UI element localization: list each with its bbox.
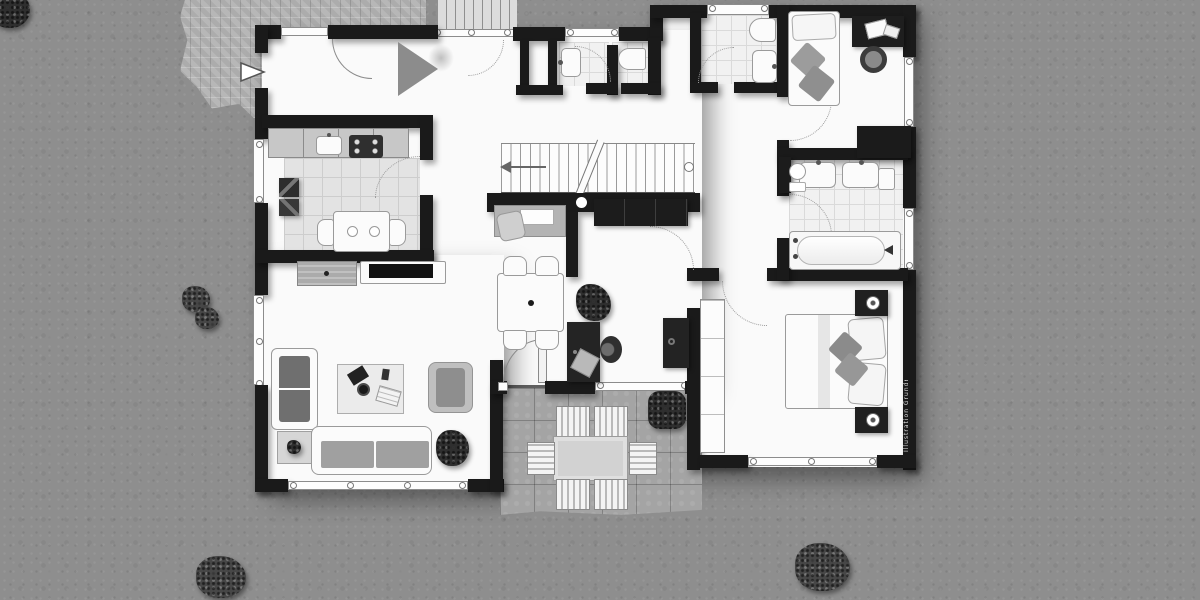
kitchen-window	[253, 139, 264, 203]
sofa-two-seat-cushions	[279, 356, 310, 422]
window-post	[256, 297, 263, 304]
coffee-table-bowl	[357, 383, 370, 396]
terrace-bush	[648, 391, 686, 429]
side-table-plant	[287, 440, 301, 454]
window-post	[906, 119, 913, 126]
wall-west-c	[255, 203, 268, 295]
entry-direction-arrow-icon	[238, 58, 268, 86]
wall-niche-west	[520, 40, 529, 88]
dining-chair	[503, 256, 527, 276]
kitchen-faucet	[327, 133, 331, 137]
wall-upperbath-south-a	[690, 82, 718, 93]
wall-living-terrace	[490, 360, 503, 492]
terrace-chair-south-1	[556, 479, 590, 510]
wall-west-a	[255, 25, 268, 53]
bush-west-2	[195, 307, 219, 329]
kitchen-chair-west	[317, 219, 334, 246]
dining-table-center	[528, 300, 534, 306]
dining-chair	[503, 330, 527, 350]
dining-chair	[535, 330, 559, 350]
terrace-chair-west	[527, 442, 555, 475]
wall-wc-south	[621, 83, 661, 94]
wall-south-dining-b	[545, 381, 595, 394]
hall-sideboard	[594, 199, 688, 226]
ensuite-window	[904, 208, 914, 270]
wall-upperbath-south-b	[734, 82, 779, 93]
upperbath-toilet	[749, 18, 776, 42]
window-post	[347, 482, 354, 489]
ensuite-faucet-1	[816, 160, 821, 165]
wall-master-south-b	[877, 455, 916, 468]
wc-toilet	[618, 48, 646, 70]
window-post	[597, 382, 604, 389]
window-post	[404, 482, 411, 489]
stove	[349, 135, 383, 158]
place-setting	[369, 226, 380, 237]
single-bed-pillow	[791, 13, 836, 41]
window-post	[611, 29, 618, 36]
window-post	[869, 458, 876, 465]
terrace-chair-south-2	[594, 479, 628, 510]
wall-kitchen-east-a	[420, 115, 433, 160]
kitchen-table	[333, 211, 390, 252]
dining-south-window	[595, 382, 685, 391]
upperbath-faucet	[772, 64, 777, 69]
wall-top-entrance-right	[328, 25, 438, 39]
wall-niche-east	[548, 40, 557, 88]
wall-east-a	[903, 5, 916, 57]
ensuite-faucet-2	[859, 160, 864, 165]
window-post	[761, 5, 768, 12]
sofa-seat-cushion	[321, 441, 374, 468]
ensuite-wardrobe	[857, 126, 911, 158]
ensuite-sink-2	[842, 162, 879, 188]
place-setting	[347, 226, 358, 237]
office-chair	[600, 336, 622, 363]
window-post	[750, 458, 757, 465]
sideboard-knob	[324, 271, 329, 276]
bedside-lamp	[866, 296, 880, 310]
kitchen-wall-art-1	[279, 178, 299, 197]
ensuite-toilet-bowl	[789, 163, 806, 180]
dining-chair	[535, 256, 559, 276]
window-post	[906, 58, 913, 65]
bush-southeast	[795, 543, 850, 591]
wall-niche-south	[516, 85, 563, 95]
kitchen-chair-east	[389, 219, 406, 246]
living-south-window	[288, 481, 468, 490]
hall-desk-paper	[520, 209, 554, 225]
railing-post	[504, 29, 511, 36]
terrace-chair-north-1	[556, 406, 590, 437]
railing-post	[468, 29, 475, 36]
bedside-lamp	[866, 413, 880, 427]
terrace-chair-north-2	[594, 406, 628, 437]
kitchen-sink	[316, 136, 342, 155]
stair-direction-line	[508, 166, 546, 168]
kitchen-wall-art-2	[279, 199, 299, 216]
window-post	[256, 141, 263, 148]
ensuite-toilet-mat	[789, 182, 806, 192]
desk-chair	[860, 46, 887, 73]
window-post	[459, 482, 466, 489]
hall-cabinet-knob	[668, 338, 675, 345]
living-plant	[436, 430, 469, 466]
wall-shower-south	[586, 83, 618, 94]
window-post	[290, 482, 297, 489]
exterior-stair	[437, 0, 517, 29]
bathtub-basin	[797, 236, 885, 265]
window-post	[808, 458, 815, 465]
small-bedroom-window	[904, 57, 914, 127]
stair-direction-arrow	[500, 161, 511, 173]
wall-west-b	[255, 88, 268, 139]
window-post	[567, 29, 574, 36]
terrace-chair-east	[629, 442, 657, 475]
sofa-seat-cushion	[376, 441, 429, 468]
wall-master-south-a	[700, 455, 748, 468]
window-post	[256, 338, 263, 345]
window-post	[256, 196, 263, 203]
stair-newel-circle	[684, 162, 694, 172]
shower-room-faucet	[558, 60, 563, 65]
entrance-top-window	[281, 27, 328, 36]
watermark: Illustration Grundriss	[903, 380, 915, 452]
tv	[369, 264, 433, 278]
stair-spine-post	[576, 197, 587, 208]
master-wardrobe	[700, 299, 725, 453]
bathtub-arrow	[884, 245, 893, 255]
window-post	[709, 5, 716, 12]
terrace-table	[553, 436, 628, 481]
floorplan-canvas: Illustration Grundriss	[0, 0, 1200, 600]
upper-bathroom-window	[707, 4, 769, 15]
dining-door-sidelight	[498, 382, 508, 391]
entrance-sketch-smudge	[428, 44, 454, 72]
shower-room-sink	[561, 48, 581, 77]
ensuite-shelf	[878, 168, 895, 190]
bathtub-tap	[793, 254, 798, 259]
wall-kitchen-north	[262, 115, 421, 128]
wall-west-d	[255, 385, 268, 492]
wall-top-mid-left	[513, 27, 565, 41]
wall-south-living-left	[255, 479, 288, 492]
window-post	[906, 210, 913, 217]
bathtub-tap	[793, 238, 798, 243]
wall-ensuite-west-b	[777, 238, 789, 280]
hall-cabinet	[663, 318, 689, 368]
wall-dining-spine	[566, 212, 578, 277]
bush-southwest	[196, 556, 246, 598]
armchair-cushion	[436, 368, 465, 407]
bush-northwest	[0, 0, 30, 28]
hall-desk-chair	[495, 210, 526, 243]
